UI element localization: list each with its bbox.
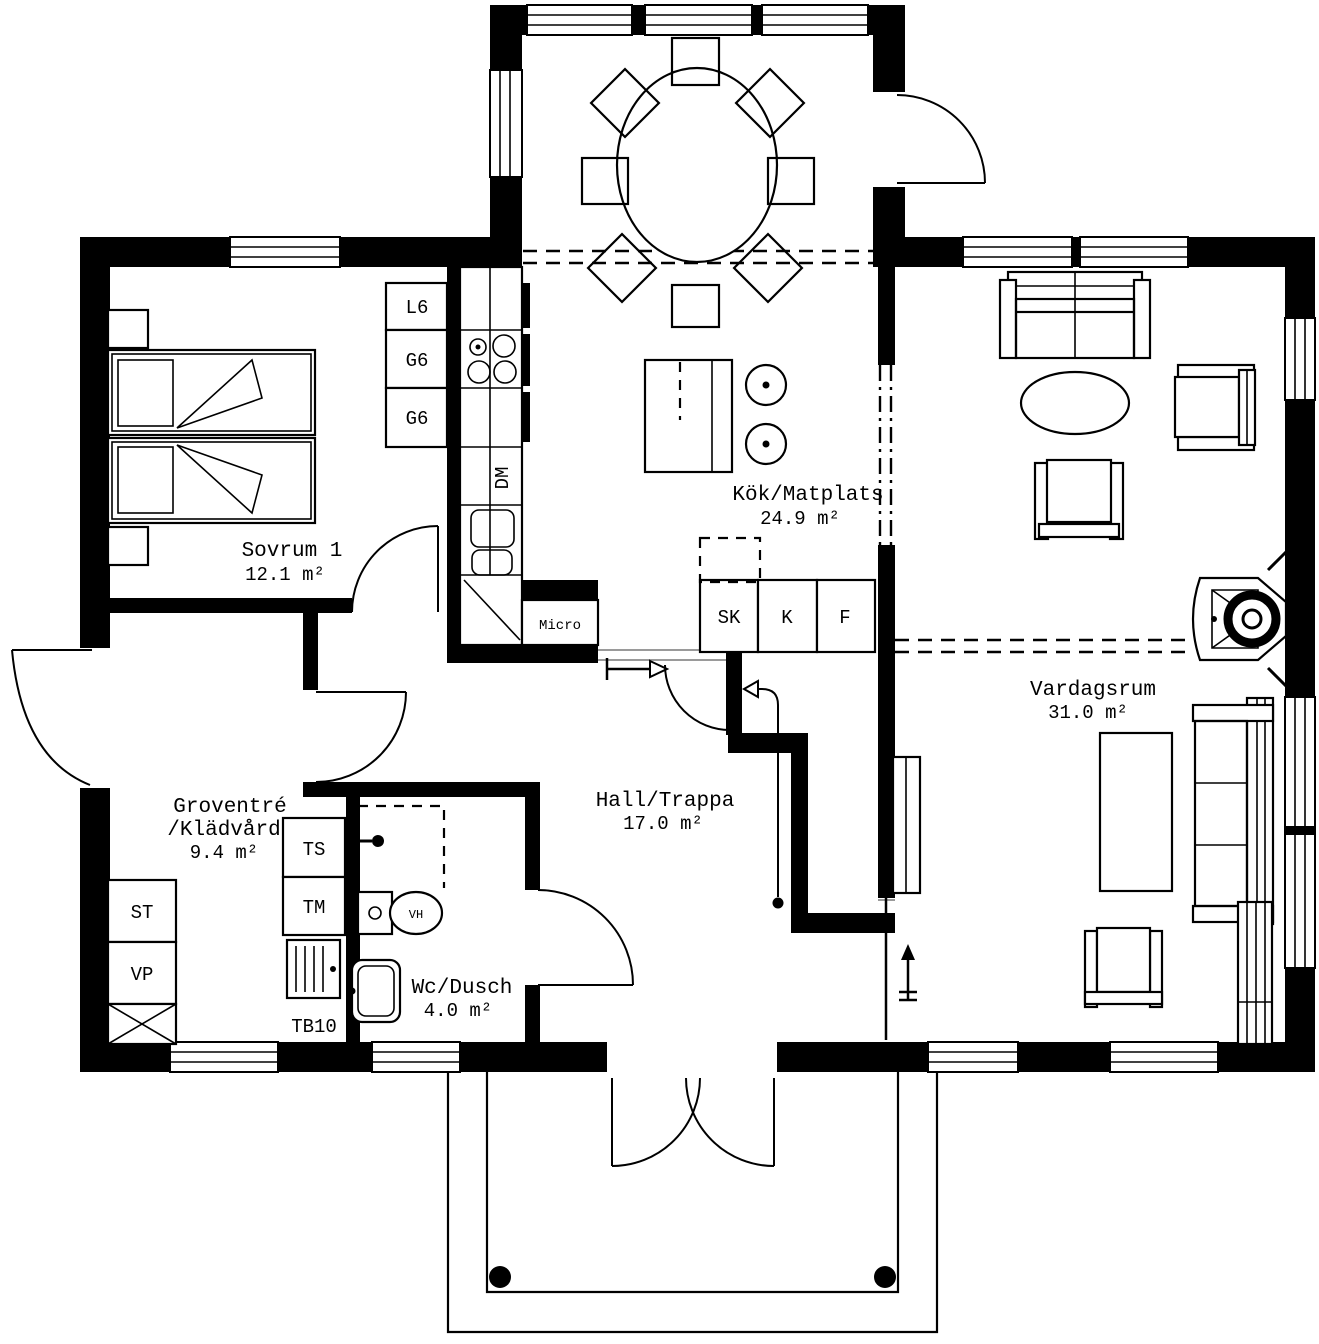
label-st: ST — [131, 902, 154, 924]
label-k: K — [781, 607, 793, 629]
dining-area — [582, 38, 814, 327]
fireplace — [1193, 546, 1292, 692]
label-sk: SK — [718, 607, 741, 629]
armchair-right — [1175, 365, 1255, 450]
door-entrance-double — [612, 1078, 774, 1166]
label-vh: VH — [409, 908, 423, 922]
room-area-groventre: 9.4 m² — [190, 842, 258, 864]
shelf-unit — [1238, 902, 1272, 1044]
label-tm: TM — [303, 897, 326, 919]
dining-table — [617, 68, 777, 262]
door-dining-exterior — [897, 95, 985, 183]
crossed-box — [108, 1004, 176, 1044]
label-g6-upper: G6 — [406, 350, 429, 372]
window-bedroom — [230, 237, 340, 267]
label-f: F — [839, 607, 850, 629]
toilet — [358, 892, 442, 934]
window-bottom-1 — [170, 1042, 278, 1072]
living-room — [1000, 272, 1292, 1044]
room-label-kok: Kök/Matplats — [732, 484, 883, 507]
window-top-right-2 — [1080, 237, 1188, 267]
room-area-hall: 17.0 m² — [623, 813, 703, 835]
washbasin — [349, 960, 401, 1022]
door-groventre-exterior — [12, 650, 92, 785]
room-label-groventre-1: Groventré — [173, 796, 286, 819]
window-bottom-2 — [372, 1042, 460, 1072]
sofa-3seat — [1193, 698, 1273, 924]
nightstand — [108, 310, 148, 348]
room-label-sovrum1: Sovrum 1 — [242, 540, 343, 563]
bed — [108, 350, 315, 435]
tall-cabinets — [700, 538, 875, 652]
bed — [108, 438, 315, 523]
window-right-1 — [1285, 318, 1315, 400]
window-bottom-3 — [928, 1042, 1018, 1072]
room-area-kok: 24.9 m² — [760, 508, 840, 530]
floor-plan-drawing: Sovrum 1 12.1 m² Kök/Matplats 24.9 m² Va… — [0, 0, 1319, 1344]
coffee-table — [1100, 733, 1172, 891]
coffee-table-oval — [1021, 372, 1129, 434]
room-label-groventre-2: /Klädvård — [167, 819, 280, 842]
chair — [588, 234, 656, 302]
window-bay-top-2 — [645, 5, 752, 35]
microwave — [522, 580, 598, 645]
room-area-sovrum1: 12.1 m² — [245, 564, 325, 586]
stair-walk-line — [744, 689, 778, 897]
label-dm: DM — [492, 467, 514, 490]
label-ts: TS — [303, 839, 326, 861]
window-bay-top-3 — [762, 5, 868, 35]
bedroom — [108, 283, 447, 565]
kitchen — [460, 267, 875, 652]
window-bottom-4 — [1110, 1042, 1218, 1072]
floor-plan: Sovrum 1 12.1 m² Kök/Matplats 24.9 m² Va… — [0, 0, 1319, 1344]
kitchen-desk — [645, 360, 786, 472]
label-micro: Micro — [539, 618, 581, 634]
door-groventre-hall — [316, 692, 406, 782]
room-area-vardagsrum: 31.0 m² — [1048, 702, 1128, 724]
armchair-bottom — [1085, 928, 1162, 1007]
window-right-2 — [1285, 697, 1315, 968]
door-wc — [538, 890, 633, 985]
tb10-bench — [287, 940, 340, 998]
room-label-hall: Hall/Trappa — [596, 790, 735, 813]
door-bedroom — [352, 526, 438, 612]
radiator — [893, 757, 920, 893]
label-g6-lower: G6 — [406, 408, 429, 430]
porch-column — [489, 1266, 511, 1288]
door-kitchen-hall — [665, 665, 730, 730]
chair — [672, 285, 719, 327]
window-bay-left — [490, 70, 522, 177]
faucet-icon — [346, 835, 384, 847]
label-l6: L6 — [406, 297, 429, 319]
room-label-vardagsrum: Vardagsrum — [1030, 679, 1156, 702]
label-tb10: TB10 — [291, 1016, 337, 1038]
porch-column — [874, 1266, 896, 1288]
walk-line-arrowhead — [744, 681, 758, 697]
shower-outline — [358, 806, 444, 888]
label-vp: VP — [131, 964, 154, 986]
room-label-wc: Wc/Dusch — [412, 977, 513, 1000]
nightstand — [108, 527, 148, 565]
north-arrow — [899, 944, 917, 1000]
room-area-wc: 4.0 m² — [424, 1000, 492, 1022]
armchair-top — [1035, 460, 1123, 539]
window-bay-top-1 — [527, 5, 632, 35]
window-top-right-1 — [963, 237, 1072, 267]
sofa-2seat — [1000, 272, 1150, 358]
